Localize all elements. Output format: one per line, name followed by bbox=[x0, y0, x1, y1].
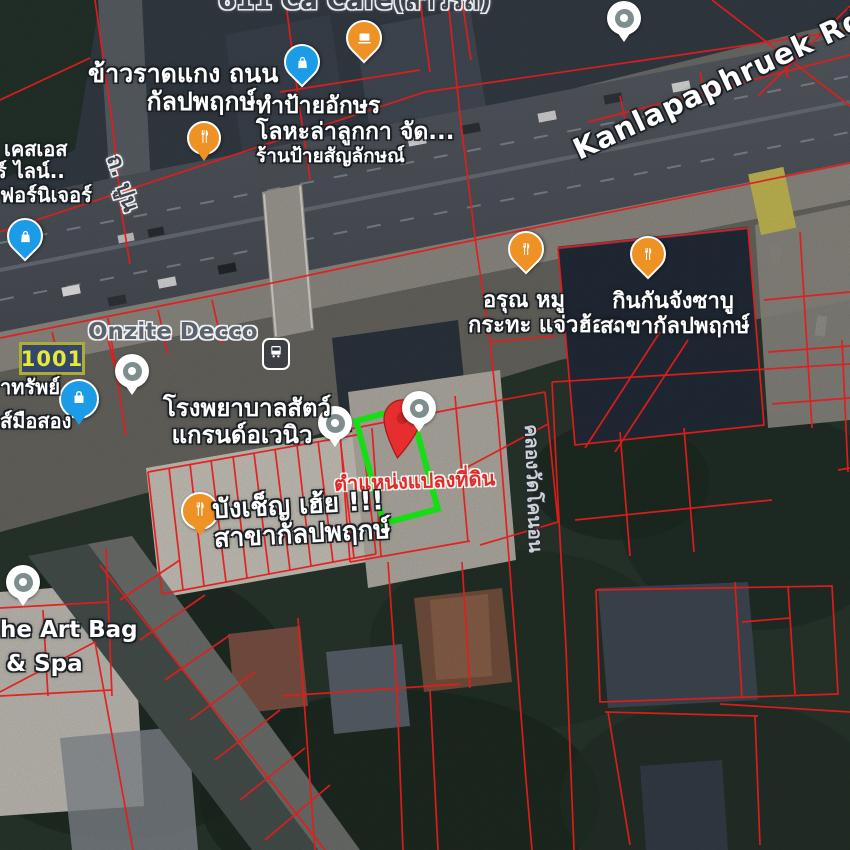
place-pin[interactable] bbox=[6, 565, 40, 599]
road-label-canal: คลองวัดโคนอน bbox=[520, 424, 546, 553]
fork-knife-icon bbox=[196, 128, 213, 149]
place-pin[interactable] bbox=[402, 391, 436, 425]
poi-label-bangchen[interactable]: บังเช็ญ เฮ้ย !!! สาขากัลปพฤกษ์ bbox=[212, 488, 373, 554]
poi-label-onzite-decco[interactable]: Onzite Decco bbox=[88, 320, 258, 346]
poi-label-art-bag-line1[interactable]: he Art Bag bbox=[0, 618, 138, 644]
poi-label-secondhand-line2[interactable]: ส์มือสอง bbox=[0, 410, 71, 432]
poi-label-case-shop-line1[interactable]: เคสเอส bbox=[4, 138, 67, 160]
poi-label-animal-hospital[interactable]: โรงพยาบาลสัตว์ แกรนด์อเวนิว bbox=[163, 395, 321, 449]
laptop-icon bbox=[348, 22, 380, 54]
map-canvas[interactable]: 1001 611 Ca Cafe(ลาวรถ) ข้าวราดแกง ถนน ก… bbox=[0, 0, 850, 850]
place-dot-icon bbox=[14, 573, 33, 592]
place-dot-icon bbox=[615, 9, 634, 28]
restaurant-pin[interactable] bbox=[187, 121, 221, 155]
poi-label-kinkan-shabu[interactable]: กินกันจังซาบู สาขากัลปพฤกษ์ bbox=[600, 290, 746, 339]
poi-label-khao-rad-kaeng[interactable]: ข้าวราดแกง ถนน กัลปพฤกษ์ bbox=[88, 60, 256, 116]
poi-label-secondhand-line1[interactable]: าทรัพย์ bbox=[0, 376, 60, 398]
bus-icon bbox=[268, 343, 284, 365]
poi-label-case-shop-line2[interactable]: ร์ ไลน์.. bbox=[0, 160, 65, 182]
poi-label-case-shop-line3[interactable]: ฟอร์นิเจอร์ bbox=[0, 184, 92, 206]
fork-knife-icon bbox=[510, 233, 542, 265]
shopping-bag-icon bbox=[9, 220, 41, 252]
place-dot-icon bbox=[410, 399, 429, 418]
poi-label-art-bag-line2[interactable]: & Spa bbox=[6, 652, 83, 678]
route-badge-1001: 1001 bbox=[19, 342, 85, 375]
shopping-bag-icon bbox=[286, 46, 318, 78]
poi-label-cafe-top[interactable]: 611 Ca Cafe(ลาวรถ) bbox=[218, 0, 491, 16]
transit-station-pin[interactable] bbox=[262, 338, 290, 370]
place-pin[interactable] bbox=[115, 354, 149, 388]
poi-label-sign-shop[interactable]: ทำป้ายอักษร โลหะล่าลูกกา จัด... ร้านป้าย… bbox=[256, 94, 454, 167]
lock-icon bbox=[70, 388, 88, 410]
fork-knife-icon bbox=[191, 500, 209, 522]
place-dot-icon bbox=[123, 362, 142, 381]
place-pin[interactable] bbox=[607, 1, 641, 35]
poi-label-arun-mookata[interactable]: อรุณ หมู กระทะ แจ่วฮ้อน bbox=[468, 289, 580, 338]
fork-knife-icon bbox=[632, 238, 664, 270]
